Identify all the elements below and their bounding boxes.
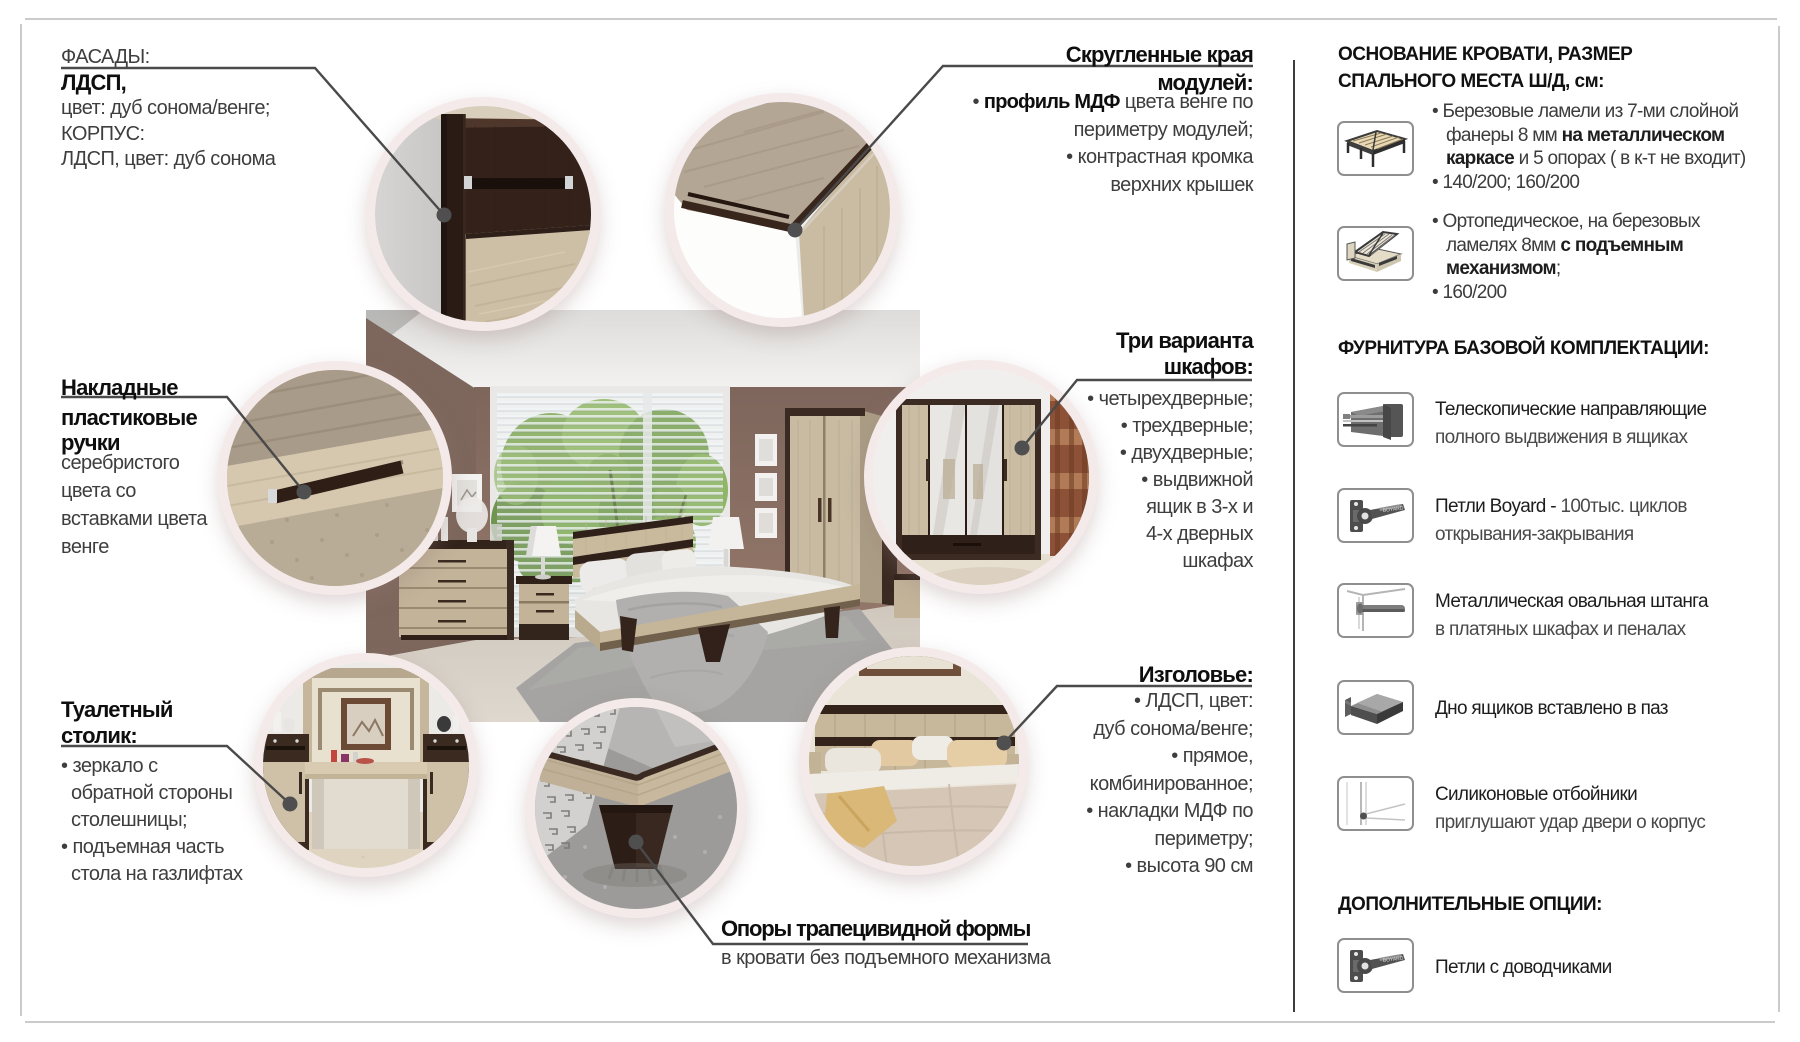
svg-text:BOYARD: BOYARD bbox=[1383, 955, 1405, 964]
svg-text:BOYARD: BOYARD bbox=[1383, 505, 1405, 514]
